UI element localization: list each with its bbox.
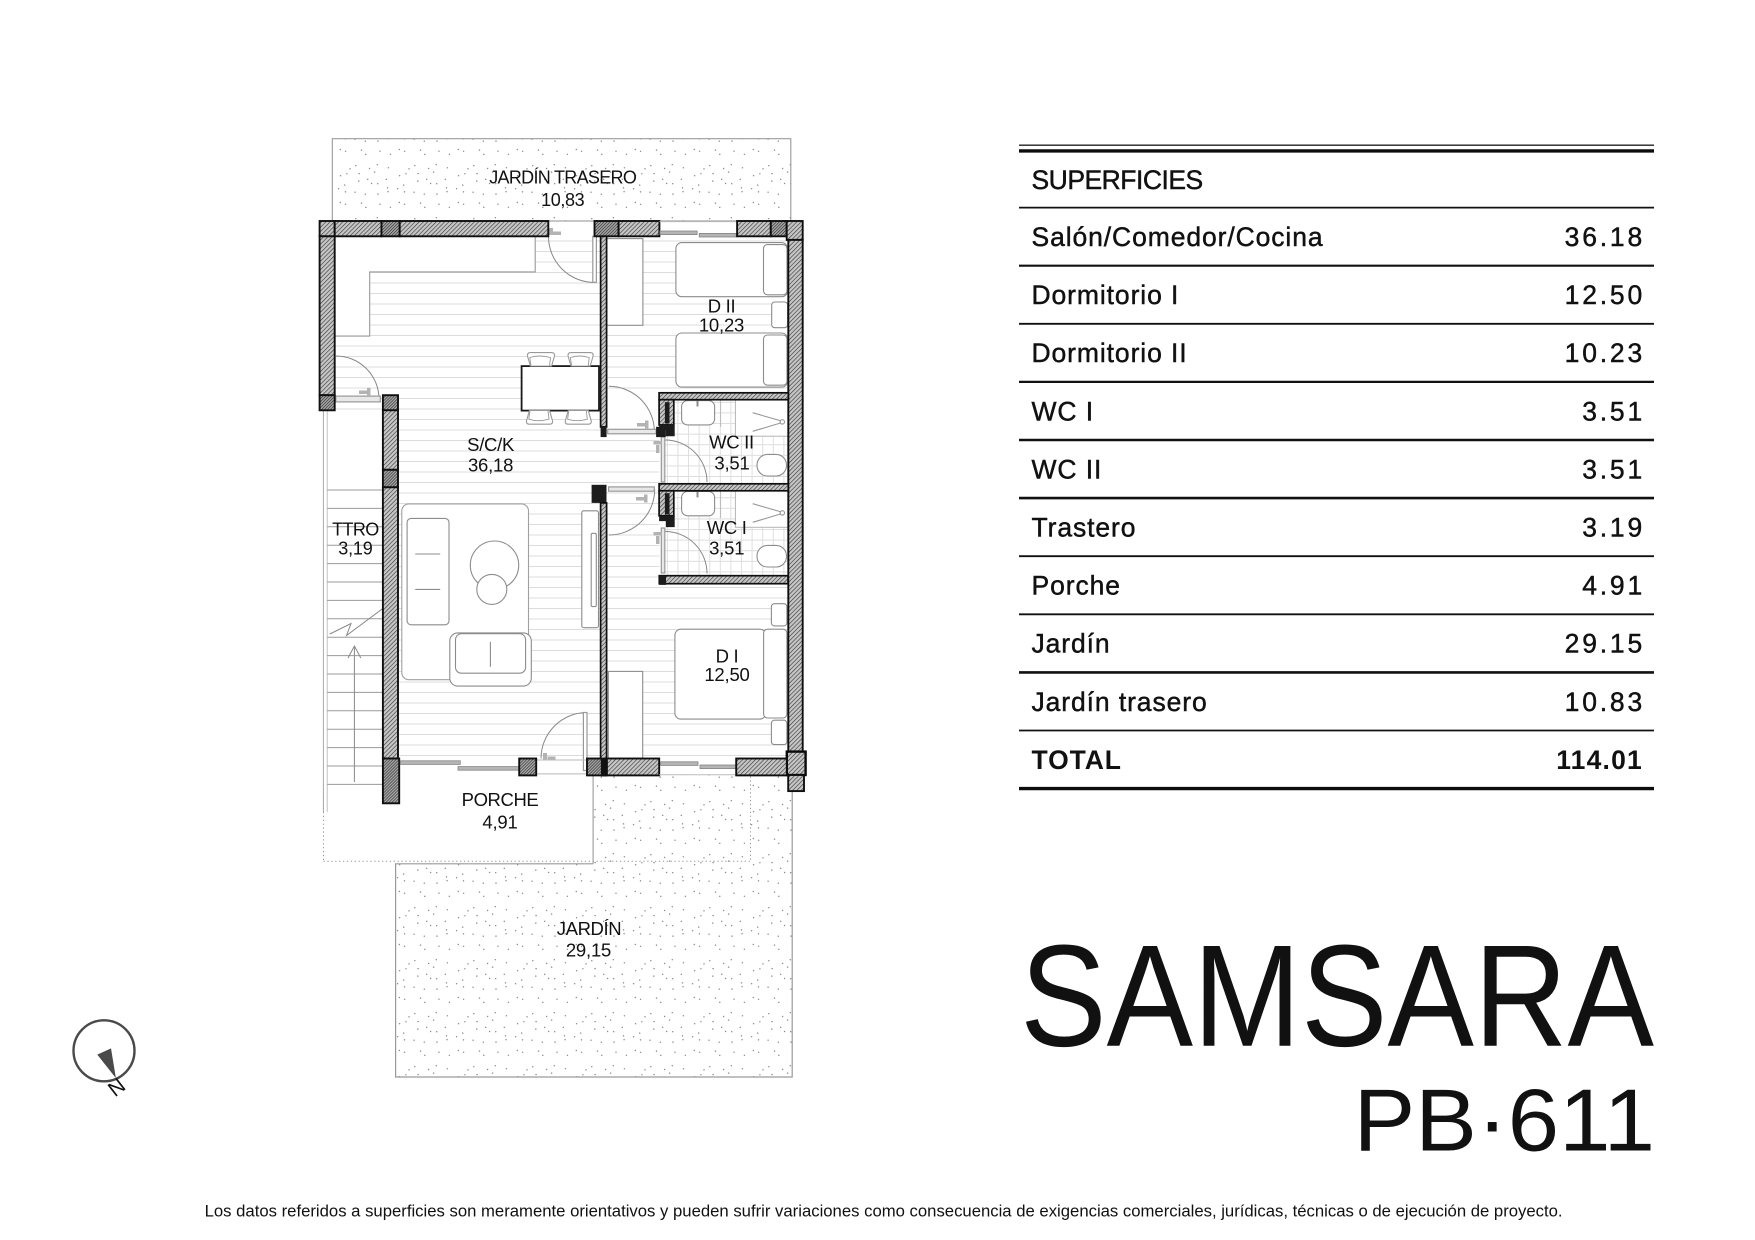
svg-text:Salón/Comedor/Cocina: Salón/Comedor/Cocina <box>1032 222 1324 252</box>
svg-text:3.19: 3.19 <box>1582 513 1645 543</box>
svg-text:Jardín trasero: Jardín trasero <box>1032 687 1208 717</box>
svg-text:36,18: 36,18 <box>468 455 513 476</box>
svg-text:3,51: 3,51 <box>714 453 749 474</box>
svg-text:S/C/K: S/C/K <box>467 434 515 455</box>
svg-text:SAMSARA: SAMSARA <box>1020 916 1654 1077</box>
svg-text:12.50: 12.50 <box>1565 280 1645 310</box>
svg-text:4,91: 4,91 <box>482 812 517 833</box>
svg-text:Los datos referidos a superfic: Los datos referidos a superficies son me… <box>205 1202 1563 1221</box>
svg-text:29,15: 29,15 <box>566 940 611 961</box>
svg-text:SUPERFICIES: SUPERFICIES <box>1032 165 1203 195</box>
svg-text:Dormitorio I: Dormitorio I <box>1032 280 1180 310</box>
svg-text:Jardín: Jardín <box>1032 629 1111 659</box>
svg-text:114.01: 114.01 <box>1556 745 1643 775</box>
svg-text:JARDÍN TRASERO: JARDÍN TRASERO <box>489 168 637 188</box>
svg-text:WC II: WC II <box>1032 454 1103 484</box>
svg-text:TTRO: TTRO <box>332 519 379 539</box>
svg-text:4.91: 4.91 <box>1582 571 1645 601</box>
svg-text:JARDÍN: JARDÍN <box>557 918 621 939</box>
svg-text:10.23: 10.23 <box>1565 338 1645 368</box>
svg-text:3,19: 3,19 <box>338 539 372 559</box>
svg-text:WC I: WC I <box>1032 396 1094 426</box>
svg-text:10,23: 10,23 <box>699 314 744 335</box>
svg-text:36.18: 36.18 <box>1565 222 1645 252</box>
svg-text:Trastero: Trastero <box>1032 513 1137 543</box>
svg-text:TOTAL: TOTAL <box>1032 745 1122 775</box>
svg-text:29.15: 29.15 <box>1565 629 1645 659</box>
svg-text:10,83: 10,83 <box>541 190 584 210</box>
svg-text:PB·611: PB·611 <box>1354 1071 1655 1170</box>
svg-text:WC I: WC I <box>707 517 747 538</box>
svg-text:10.83: 10.83 <box>1565 687 1645 717</box>
svg-text:PORCHE: PORCHE <box>462 789 539 810</box>
svg-text:3.51: 3.51 <box>1582 454 1645 484</box>
svg-text:Porche: Porche <box>1032 571 1121 601</box>
svg-text:3,51: 3,51 <box>709 538 744 559</box>
svg-text:12,50: 12,50 <box>704 664 749 685</box>
svg-text:3.51: 3.51 <box>1582 396 1645 426</box>
svg-text:Dormitorio II: Dormitorio II <box>1032 338 1188 368</box>
svg-text:WC II: WC II <box>709 432 754 453</box>
